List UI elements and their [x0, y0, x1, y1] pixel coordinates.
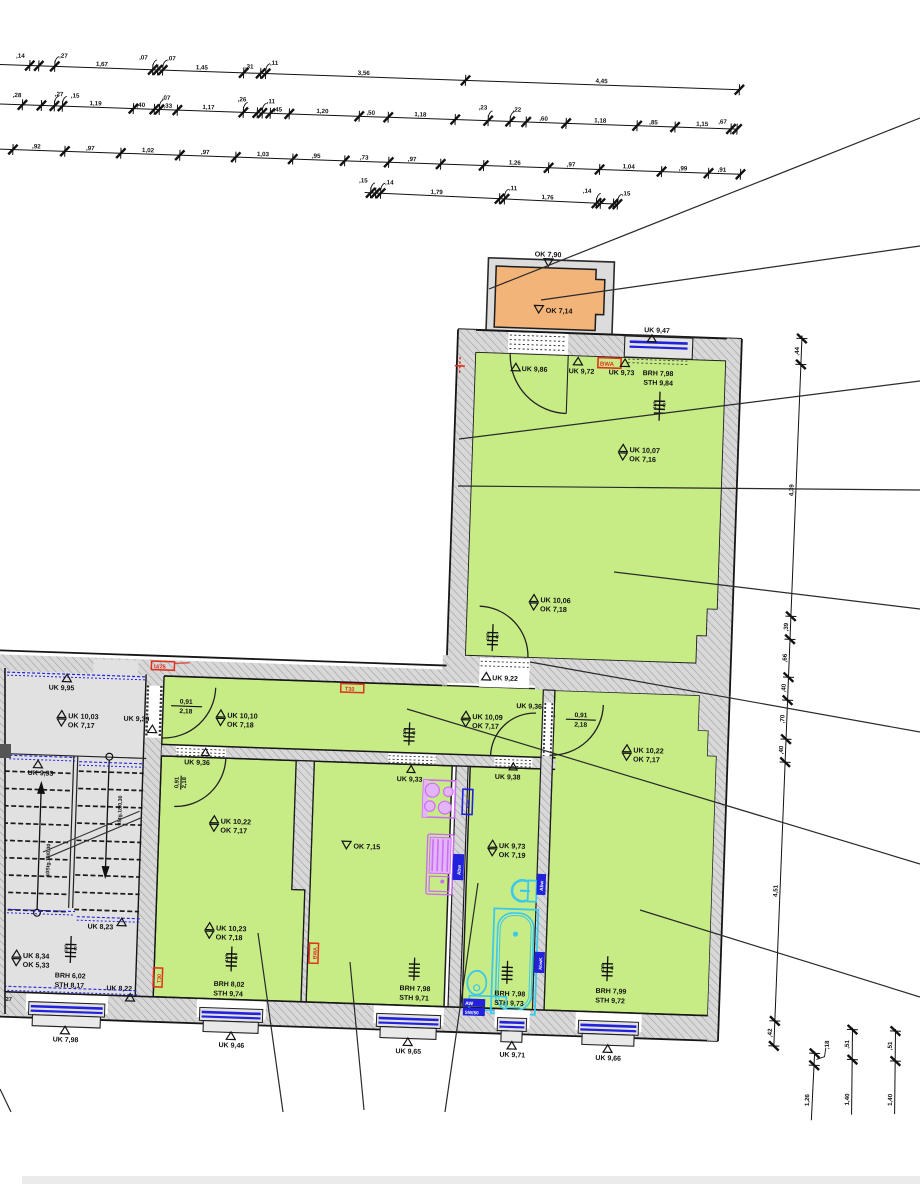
- svg-text:U/25: U/25: [154, 664, 166, 670]
- svg-text:,14: ,14: [385, 179, 394, 186]
- svg-text:UK 9,33: UK 9,33: [397, 776, 423, 784]
- svg-text:,11: ,11: [267, 98, 276, 105]
- svg-text:,27: ,27: [59, 53, 68, 60]
- svg-text:,07: ,07: [139, 54, 148, 61]
- svg-text:BRH 7,98: BRH 7,98: [643, 370, 674, 378]
- svg-text:UK 9,86: UK 9,86: [522, 366, 548, 374]
- svg-text:1,18: 1,18: [414, 111, 427, 118]
- svg-text:BRH 8,02: BRH 8,02: [214, 981, 245, 989]
- svg-text:1,40: 1,40: [844, 1093, 851, 1106]
- svg-text:,70: ,70: [779, 714, 786, 723]
- svg-text:3,56: 3,56: [358, 70, 371, 77]
- svg-text:UK 9,71: UK 9,71: [499, 1052, 525, 1060]
- svg-text:,40: ,40: [780, 683, 787, 692]
- svg-text:,97: ,97: [408, 156, 417, 163]
- svg-text:OK 7,90: OK 7,90: [535, 249, 562, 259]
- svg-text:AbwK: AbwK: [538, 957, 543, 970]
- svg-text:,39: ,39: [783, 622, 790, 631]
- svg-text:BWA: BWA: [313, 947, 319, 960]
- svg-text:OK 5,33: OK 5,33: [23, 960, 50, 970]
- svg-text:,51: ,51: [844, 1039, 851, 1048]
- svg-text:,23: ,23: [478, 104, 487, 111]
- svg-text:4,45: 4,45: [595, 78, 608, 85]
- svg-text:BWA: BWA: [600, 362, 615, 368]
- svg-text:1,15: 1,15: [696, 121, 709, 128]
- svg-text:AW: AW: [465, 1001, 474, 1007]
- svg-text:0,91: 0,91: [574, 712, 587, 719]
- svg-text:,40: ,40: [136, 102, 145, 109]
- svg-text:,15: ,15: [71, 92, 80, 99]
- svg-text:,97: ,97: [201, 149, 210, 156]
- svg-text:1,67: 1,67: [96, 61, 109, 68]
- svg-text:,15: ,15: [622, 190, 631, 197]
- svg-text:,51: ,51: [887, 1041, 894, 1050]
- svg-text:1,19: 1,19: [89, 100, 102, 107]
- svg-text:1,40: 1,40: [887, 1093, 894, 1106]
- svg-text:,42: ,42: [767, 1028, 774, 1037]
- svg-text:UK 9,36: UK 9,36: [184, 759, 210, 767]
- svg-text:2,18: 2,18: [182, 776, 188, 788]
- svg-text:UK 9,65: UK 9,65: [395, 1048, 421, 1056]
- svg-text:UK 8,22: UK 8,22: [106, 985, 132, 993]
- svg-text:OK 7,15: OK 7,15: [353, 842, 380, 852]
- svg-text:UK 7,98: UK 7,98: [53, 1036, 79, 1044]
- svg-text:Abw: Abw: [539, 880, 545, 891]
- svg-text:T30: T30: [345, 687, 355, 693]
- svg-text:1,17: 1,17: [202, 104, 215, 111]
- svg-text:,28: ,28: [13, 92, 22, 99]
- svg-text:,66: ,66: [782, 653, 789, 662]
- svg-text:11/5: 11/5: [402, 728, 407, 737]
- svg-text:OK 7,18: OK 7,18: [216, 932, 243, 942]
- svg-text:11/5: 11/5: [652, 400, 657, 409]
- svg-text:1,03: 1,03: [257, 151, 270, 158]
- svg-text:UK 9,36: UK 9,36: [516, 703, 542, 711]
- svg-text:,85: ,85: [649, 119, 658, 126]
- svg-text:0,91: 0,91: [180, 699, 193, 706]
- svg-text:,31: ,31: [245, 63, 254, 70]
- svg-text:9Stg.18/0,30: 9Stg.18/0,30: [117, 795, 124, 825]
- svg-text:OK 7,17: OK 7,17: [633, 754, 660, 764]
- svg-text:1,76: 1,76: [541, 194, 554, 201]
- svg-text:BRH 7,98: BRH 7,98: [399, 985, 430, 993]
- svg-text:,18: ,18: [824, 1040, 831, 1049]
- svg-text:,67: ,67: [718, 119, 727, 126]
- svg-text:OK 7,17: OK 7,17: [68, 720, 95, 730]
- svg-text:UK 8,23: UK 8,23: [87, 924, 113, 932]
- svg-text:,14: ,14: [16, 53, 25, 60]
- svg-text:UK 9,66: UK 9,66: [595, 1055, 621, 1063]
- svg-text:,22: ,22: [512, 107, 521, 114]
- svg-text:,44: ,44: [794, 346, 801, 355]
- svg-text:1,26: 1,26: [804, 1093, 811, 1106]
- svg-text:,45: ,45: [273, 106, 282, 113]
- svg-text:STH 9,74: STH 9,74: [213, 990, 243, 998]
- svg-text:2,18: 2,18: [574, 721, 587, 728]
- svg-text:1,20: 1,20: [316, 108, 329, 115]
- svg-text:1,18: 1,18: [594, 117, 607, 124]
- svg-text:SW/50: SW/50: [465, 1010, 479, 1015]
- svg-text:BRH 6,02: BRH 6,02: [55, 972, 86, 980]
- svg-text:1,04: 1,04: [623, 163, 636, 170]
- svg-text:,73: ,73: [360, 154, 369, 161]
- svg-text:,07: ,07: [167, 55, 176, 62]
- svg-text:OK 7,18: OK 7,18: [227, 720, 254, 730]
- svg-text:11/5: 11/5: [600, 963, 605, 972]
- svg-text:1,02: 1,02: [142, 147, 155, 154]
- svg-text:,97: ,97: [567, 161, 576, 168]
- svg-text:UK 9,39: UK 9,39: [123, 716, 149, 724]
- svg-text:,11: ,11: [509, 185, 518, 192]
- svg-text:,97: ,97: [86, 145, 95, 152]
- svg-text:4,51: 4,51: [772, 884, 779, 897]
- svg-text:,99: ,99: [679, 165, 688, 172]
- svg-text:KW: KW: [466, 800, 472, 809]
- svg-text:BRH 7,99: BRH 7,99: [595, 988, 626, 996]
- svg-text:OK 7,18: OK 7,18: [540, 604, 567, 614]
- svg-text:UK 9,72: UK 9,72: [569, 368, 595, 376]
- svg-text:11/5: 11/5: [63, 944, 68, 953]
- svg-text:STH 9,84: STH 9,84: [643, 380, 673, 388]
- svg-text:,11: ,11: [270, 60, 279, 67]
- svg-text:UK 9,93: UK 9,93: [28, 770, 54, 778]
- svg-text:,50: ,50: [366, 110, 375, 117]
- svg-text:UK 9,38: UK 9,38: [495, 774, 521, 782]
- svg-text:,33: ,33: [163, 103, 172, 110]
- svg-text:1,26: 1,26: [509, 159, 522, 166]
- svg-text:,07: ,07: [162, 95, 171, 102]
- svg-text:0,91: 0,91: [174, 776, 180, 788]
- svg-text:,92: ,92: [32, 143, 41, 150]
- svg-text:UK 9,22: UK 9,22: [492, 675, 518, 683]
- svg-text:11/5: 11/5: [224, 953, 229, 962]
- svg-text:OK 7,19: OK 7,19: [499, 850, 526, 860]
- svg-text:STH 9,73: STH 9,73: [494, 1000, 524, 1008]
- svg-text:OK 7,17: OK 7,17: [220, 825, 247, 835]
- svg-text:,60: ,60: [539, 115, 548, 122]
- svg-text:,14: ,14: [583, 188, 592, 195]
- svg-text:OK 7,14: OK 7,14: [546, 306, 573, 316]
- svg-text:STH 9,71: STH 9,71: [399, 995, 429, 1003]
- svg-text:OK 7,16: OK 7,16: [629, 454, 656, 464]
- svg-text:,91: ,91: [718, 167, 727, 174]
- svg-text:,40: ,40: [778, 745, 785, 754]
- svg-text:,26: ,26: [238, 96, 247, 103]
- svg-text:STH 9,72: STH 9,72: [595, 997, 625, 1005]
- svg-text:T30: T30: [157, 974, 163, 983]
- svg-text:UK 9,95: UK 9,95: [48, 685, 74, 693]
- svg-text:11/5: 11/5: [485, 632, 490, 641]
- svg-text:UK 9,73: UK 9,73: [609, 369, 635, 377]
- svg-text:2,18: 2,18: [179, 708, 192, 715]
- svg-text:UK 9,47: UK 9,47: [644, 327, 670, 335]
- svg-text:UK 9,46: UK 9,46: [218, 1042, 244, 1050]
- svg-text:1,79: 1,79: [431, 189, 444, 196]
- svg-text:,95: ,95: [312, 153, 321, 160]
- svg-text:Abw: Abw: [456, 865, 462, 876]
- svg-text:4,39: 4,39: [788, 484, 795, 497]
- svg-text:,15: ,15: [359, 177, 368, 184]
- svg-text:1,45: 1,45: [196, 64, 209, 71]
- svg-text:,27: ,27: [55, 91, 64, 98]
